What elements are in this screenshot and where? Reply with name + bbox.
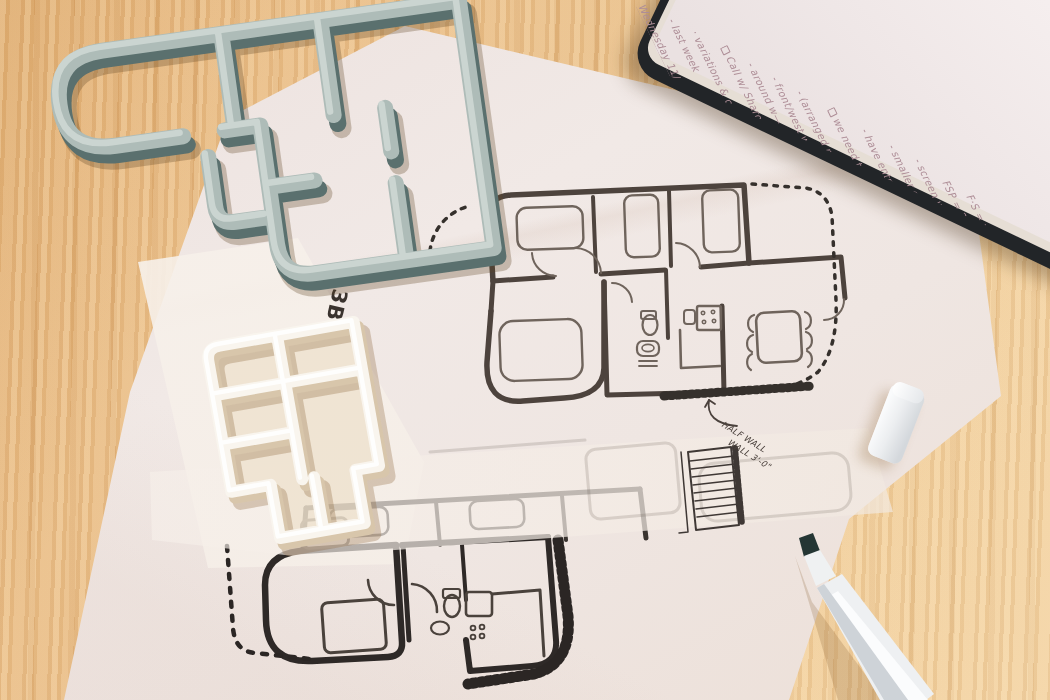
marker-body	[817, 574, 934, 700]
marker-body-highlight	[826, 591, 928, 700]
desk-scene: 3BR HALF WALL WALL 3'-0"	[0, 0, 1050, 700]
marker-body-shade	[817, 584, 908, 700]
